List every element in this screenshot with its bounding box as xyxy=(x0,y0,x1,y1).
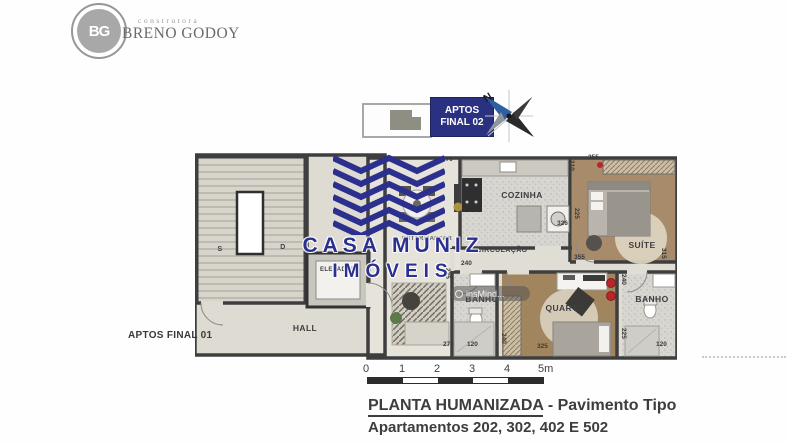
builder-logo: BG xyxy=(71,3,127,59)
scale-tick: 0 xyxy=(363,363,369,375)
plan-subtitle: Apartamentos 202, 302, 402 E 502 xyxy=(368,419,608,436)
scale-tick: 5m xyxy=(538,363,553,375)
insmind-text: insMind... xyxy=(466,289,505,299)
badge-line1: APTOS xyxy=(445,105,479,117)
insmind-logo-icon xyxy=(455,290,463,298)
casa-muniz-logo-icon xyxy=(333,153,445,235)
aptos-final-01-label: APTOS FINAL 01 xyxy=(128,330,212,341)
watermark-brand-line1: CASA MUNIZ xyxy=(302,234,483,258)
plan-title: PLANTA HUMANIZADA - Pavimento Tipo xyxy=(368,397,676,415)
marketing-floorplan-page: BG construtora BRENO GODOY APTOS FINAL 0… xyxy=(0,0,788,443)
builder-name: BRENO GODOY xyxy=(122,25,240,43)
scale-tick: 3 xyxy=(469,363,475,375)
scale-bar xyxy=(367,377,544,384)
scale-tick: 1 xyxy=(399,363,405,375)
keyplan-thumbnail xyxy=(362,103,432,138)
plan-title-rest: - Pavimento Tipo xyxy=(543,397,676,414)
keyplan-highlight-step xyxy=(412,117,421,130)
watermark-brand-line2: IMÓVEIS xyxy=(332,261,453,283)
builder-logo-monogram: BG xyxy=(77,9,121,53)
plan-title-strong: PLANTA HUMANIZADA xyxy=(368,397,543,417)
keyplan-highlight-shape xyxy=(390,110,412,130)
scale-tick: 2 xyxy=(434,363,440,375)
dashed-edge-artifact xyxy=(702,356,786,358)
staircase xyxy=(197,157,305,303)
insmind-watermark: insMind... xyxy=(450,286,530,301)
builder-tagline: construtora xyxy=(138,16,199,25)
scale-tick: 4 xyxy=(504,363,510,375)
badge-line2: FINAL 02 xyxy=(440,117,483,129)
